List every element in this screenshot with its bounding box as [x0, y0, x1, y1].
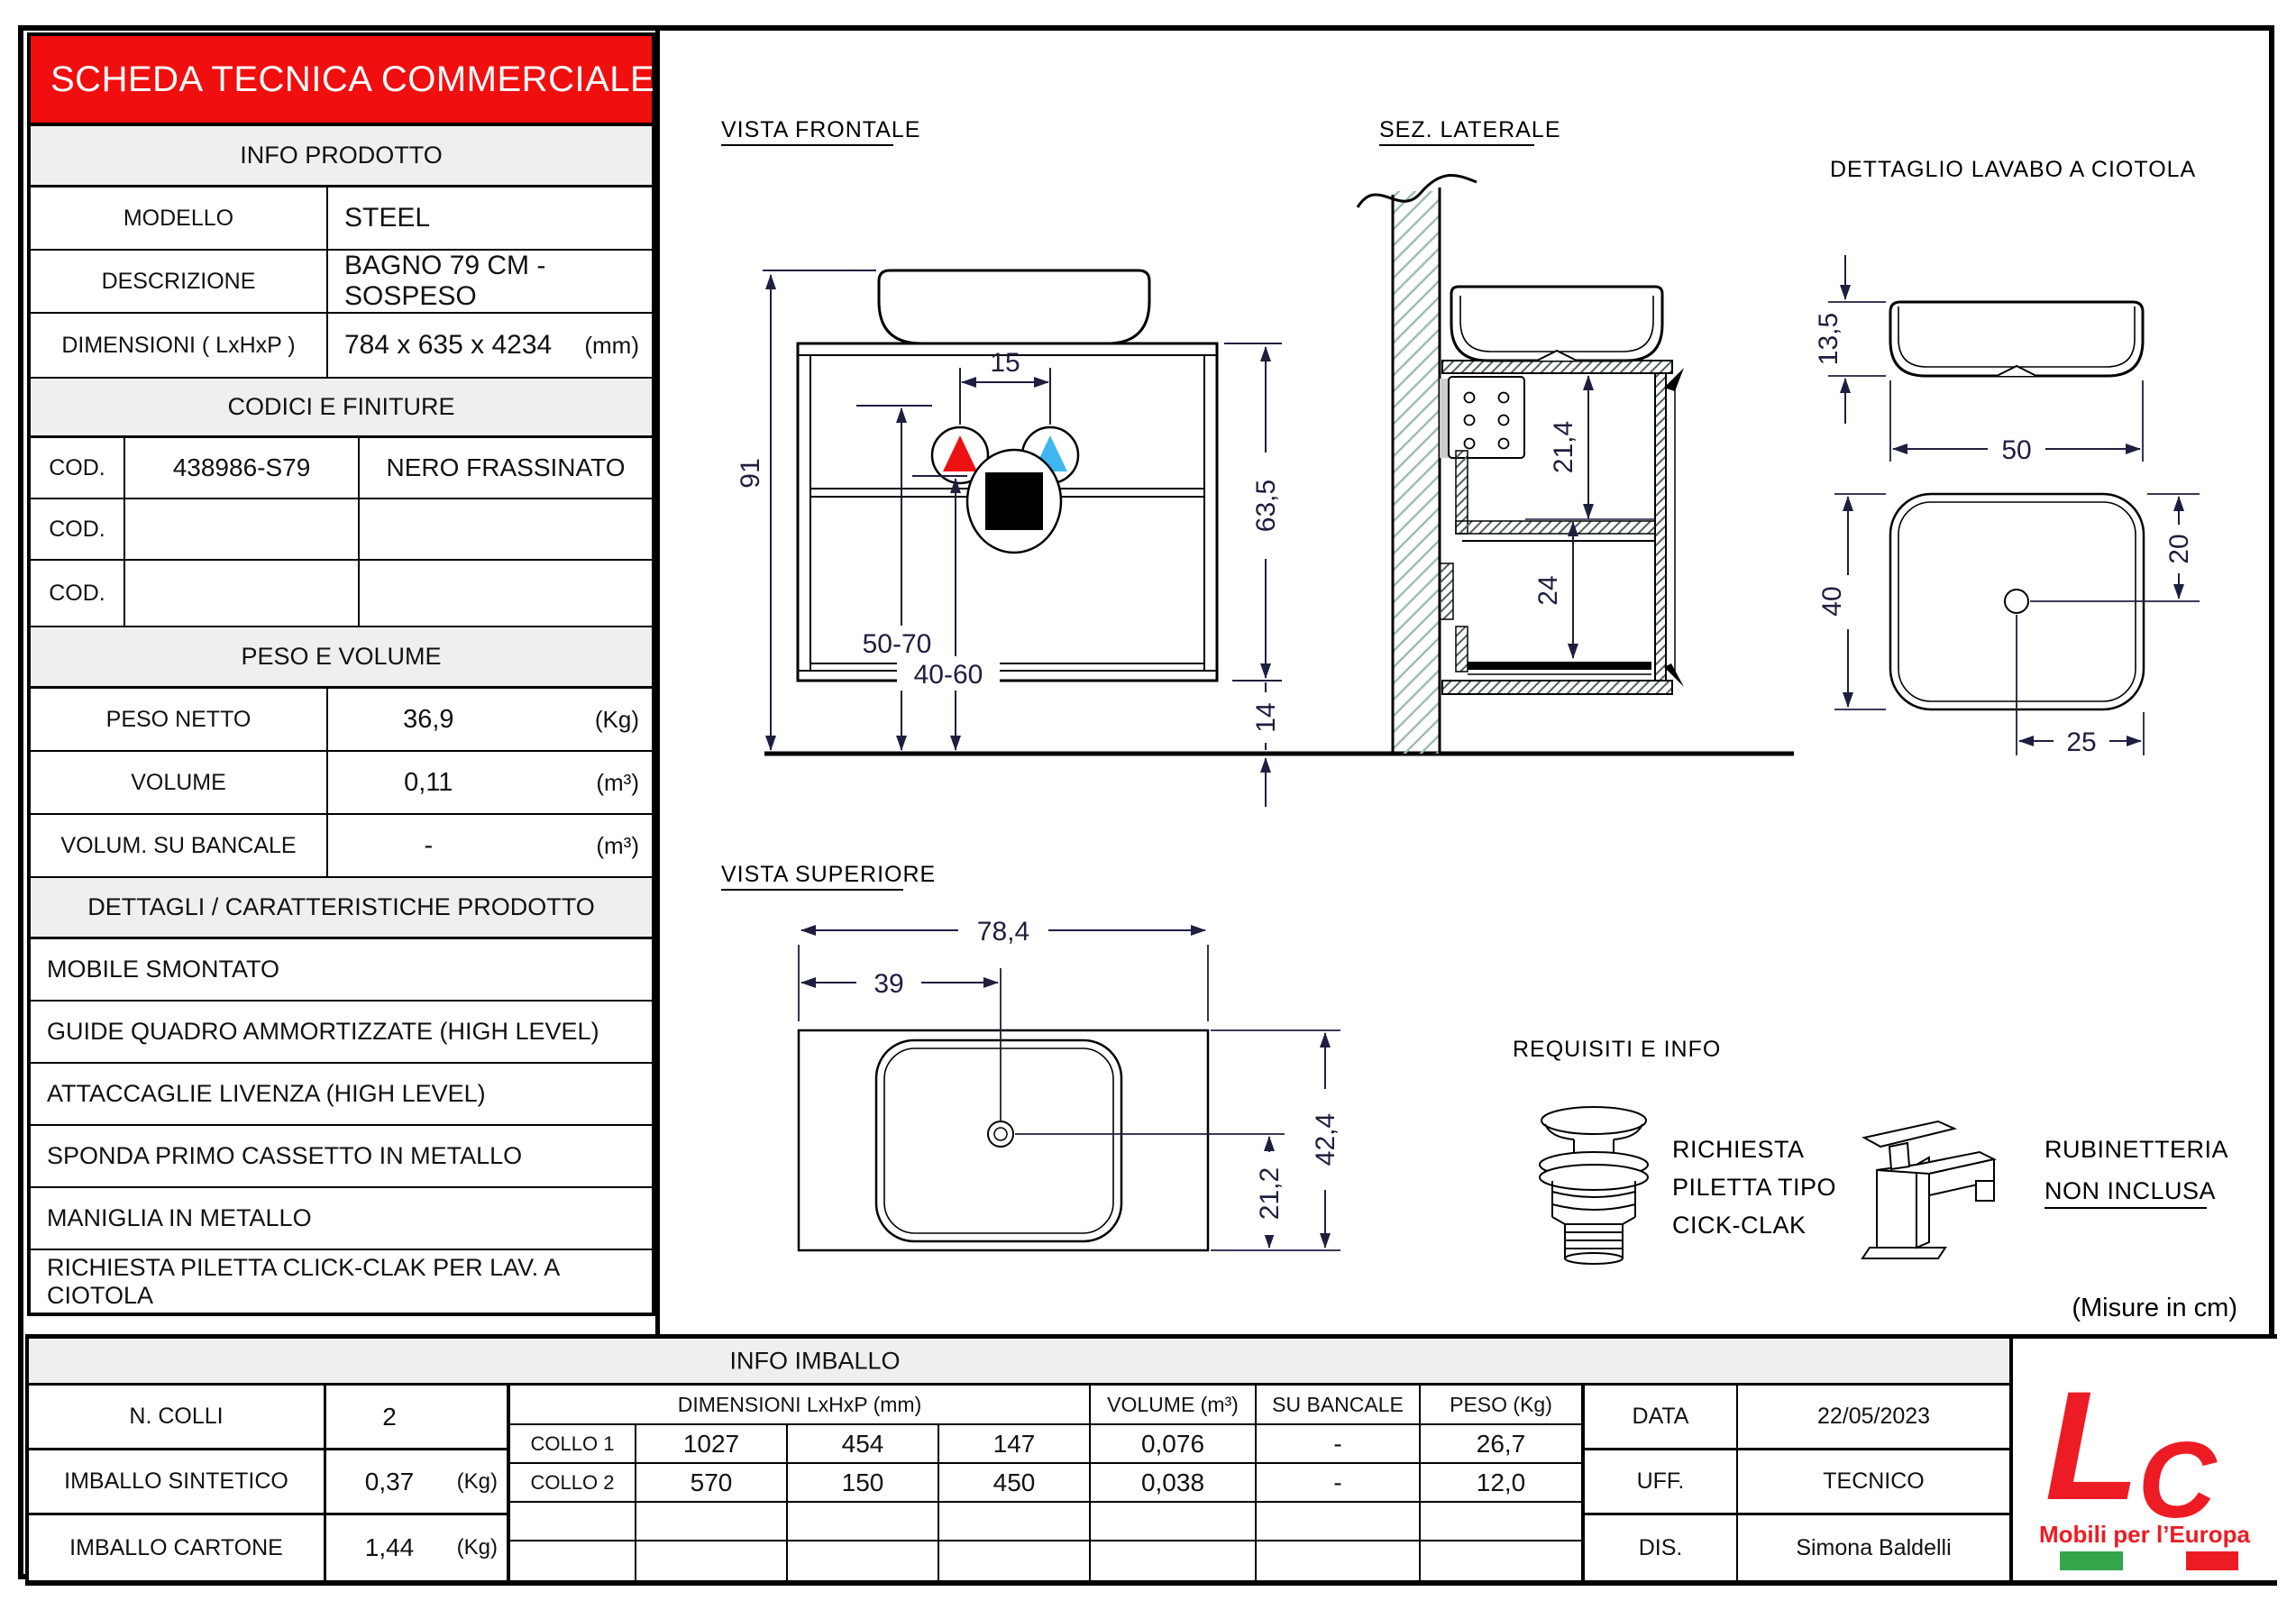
peso-volume-header: PESO E VOLUME	[31, 627, 652, 689]
sheet-title-banner: SCHEDA TECNICA COMMERCIALE	[31, 36, 652, 126]
peso-netto-unit: (Kg)	[595, 706, 639, 734]
collo2-peso: 12,0	[1421, 1464, 1581, 1503]
table-row: DESCRIZIONE BAGNO 79 CM - SOSPESO	[31, 251, 652, 314]
flag-green-bar	[2060, 1551, 2123, 1570]
cod-label: COD.	[31, 499, 125, 559]
collo1-vol: 0,076	[1091, 1425, 1257, 1464]
empty-cell	[1091, 1541, 1257, 1580]
modello-label: MODELLO	[31, 188, 328, 249]
empty-cell	[1421, 1503, 1581, 1541]
volume-label: VOLUME	[31, 752, 328, 813]
dettagli-item: GUIDE QUADRO AMMORTIZZATE (HIGH LEVEL)	[31, 1002, 652, 1064]
collo2-l: 570	[636, 1464, 788, 1503]
collo2-bancale: -	[1257, 1464, 1421, 1503]
volum-bancale-label: VOLUM. SU BANCALE	[31, 815, 328, 876]
volum-bancale-number: -	[328, 831, 529, 861]
data-value: 22/05/2023	[1738, 1386, 2009, 1450]
cod-finish: NERO FRASSINATO	[360, 438, 652, 498]
uff-label: UFF.	[1585, 1450, 1738, 1515]
info-imballo-table: INFO IMBALLO N. COLLI 2 IMBALLO SINTETIC…	[25, 1334, 2277, 1586]
collo2-p: 450	[939, 1464, 1091, 1503]
empty-cell	[1257, 1503, 1421, 1541]
imballo-left-table: N. COLLI 2 IMBALLO SINTETICO 0,37 (Kg) I…	[29, 1386, 507, 1580]
volume-number: 0,11	[328, 768, 529, 798]
drawing-info-table: DATA 22/05/2023 UFF. TECNICO DIS. Simona…	[1581, 1386, 2009, 1580]
dim-header: DIMENSIONI LxHxP (mm)	[510, 1386, 1091, 1425]
imballo-cartone-unit: (Kg)	[457, 1535, 498, 1560]
imballo-sintetico-number: 0,37	[326, 1468, 453, 1496]
empty-cell	[510, 1541, 636, 1580]
modello-value: STEEL	[328, 188, 652, 249]
n-colli-value: 2	[326, 1386, 507, 1450]
volume-header: VOLUME (m³)	[1091, 1386, 1257, 1425]
product-sheet-table: SCHEDA TECNICA COMMERCIALE INFO PRODOTTO…	[27, 32, 655, 1316]
collo1-bancale: -	[1257, 1425, 1421, 1464]
collo2-h: 150	[788, 1464, 939, 1503]
dimensioni-value: 784 x 635 x 4234 (mm)	[328, 314, 652, 377]
empty-cell	[939, 1541, 1091, 1580]
imballo-cartone-value: 1,44 (Kg)	[326, 1515, 507, 1580]
imballo-sintetico-unit: (Kg)	[457, 1469, 498, 1495]
empty-cell	[636, 1503, 788, 1541]
empty-cell	[788, 1541, 939, 1580]
table-row: COD.	[31, 499, 652, 561]
dimensioni-label: DIMENSIONI ( LxHxP )	[31, 314, 328, 377]
table-row: VOLUME 0,11 (m³)	[31, 752, 652, 815]
info-imballo-header: INFO IMBALLO	[29, 1339, 2009, 1386]
logo-letter-l: L	[2044, 1359, 2139, 1532]
imballo-cartone-label: IMBALLO CARTONE	[29, 1515, 326, 1580]
empty-cell	[1091, 1503, 1257, 1541]
collo1-peso: 26,7	[1421, 1425, 1581, 1464]
peso-header: PESO (Kg)	[1421, 1386, 1581, 1425]
imballo-sintetico-value: 0,37 (Kg)	[326, 1450, 507, 1515]
table-row: DIMENSIONI ( LxHxP ) 784 x 635 x 4234 (m…	[31, 314, 652, 379]
peso-netto-number: 36,9	[328, 705, 529, 735]
dettagli-item: MOBILE SMONTATO	[31, 939, 652, 1002]
volume-unit: (m³)	[596, 769, 639, 797]
data-label: DATA	[1585, 1386, 1738, 1450]
collo2-vol: 0,038	[1091, 1464, 1257, 1503]
peso-netto-label: PESO NETTO	[31, 689, 328, 750]
collo1-p: 147	[939, 1425, 1091, 1464]
flag-red-bar	[2186, 1551, 2238, 1570]
dimensioni-unit: (mm)	[584, 332, 639, 360]
n-colli-label: N. COLLI	[29, 1386, 326, 1450]
dettagli-header: DETTAGLI / CARATTERISTICHE PRODOTTO	[31, 878, 652, 939]
empty-cell	[1257, 1541, 1421, 1580]
column-divider	[655, 25, 660, 1334]
company-logo-box: L C Mobili per l’Europa	[2009, 1339, 2277, 1580]
info-prodotto-header: INFO PRODOTTO	[31, 126, 652, 188]
dimensioni-numbers: 784 x 635 x 4234	[344, 330, 552, 361]
dis-value: Simona Baldelli	[1738, 1515, 2009, 1580]
collo1-label: COLLO 1	[510, 1425, 636, 1464]
table-row: VOLUM. SU BANCALE - (m³)	[31, 815, 652, 878]
volum-bancale-unit: (m³)	[596, 832, 639, 860]
cod-value: 438986-S79	[125, 438, 360, 498]
volum-bancale-value: - (m³)	[328, 815, 652, 876]
table-row: COD.	[31, 561, 652, 627]
collo2-label: COLLO 2	[510, 1464, 636, 1503]
n-colli-number: 2	[326, 1403, 453, 1432]
lc-logo: L C Mobili per l’Europa	[2013, 1339, 2277, 1580]
uff-value: TECNICO	[1738, 1450, 2009, 1515]
empty-cell	[510, 1503, 636, 1541]
dettagli-item: MANIGLIA IN METALLO	[31, 1188, 652, 1250]
collo1-l: 1027	[636, 1425, 788, 1464]
colli-table: DIMENSIONI LxHxP (mm) VOLUME (m³) SU BAN…	[507, 1386, 1581, 1580]
imballo-cartone-number: 1,44	[326, 1533, 453, 1562]
cod-value	[125, 499, 360, 559]
empty-cell	[788, 1503, 939, 1541]
cod-value	[125, 561, 360, 626]
dis-label: DIS.	[1585, 1515, 1738, 1580]
sheet-title: SCHEDA TECNICA COMMERCIALE	[50, 59, 654, 100]
imballo-sintetico-label: IMBALLO SINTETICO	[29, 1450, 326, 1515]
empty-cell	[636, 1541, 788, 1580]
descrizione-value: BAGNO 79 CM - SOSPESO	[328, 251, 652, 312]
volume-value: 0,11 (m³)	[328, 752, 652, 813]
table-row: COD. 438986-S79 NERO FRASSINATO	[31, 438, 652, 499]
cod-label: COD.	[31, 561, 125, 626]
peso-netto-value: 36,9 (Kg)	[328, 689, 652, 750]
info-imballo-title: INFO IMBALLO	[729, 1347, 900, 1375]
table-row: MODELLO STEEL	[31, 188, 652, 251]
dettagli-item: ATTACCAGLIE LIVENZA (HIGH LEVEL)	[31, 1064, 652, 1126]
dettagli-item: SPONDA PRIMO CASSETTO IN METALLO	[31, 1126, 652, 1188]
empty-cell	[1421, 1541, 1581, 1580]
descrizione-label: DESCRIZIONE	[31, 251, 328, 312]
codici-header: CODICI E FINITURE	[31, 379, 652, 438]
cod-finish	[360, 561, 652, 626]
bancale-header: SU BANCALE	[1257, 1386, 1421, 1425]
collo1-h: 454	[788, 1425, 939, 1464]
cod-finish	[360, 499, 652, 559]
dettagli-item: RICHIESTA PILETTA CLICK-CLAK PER LAV. A …	[31, 1250, 652, 1313]
cod-label: COD.	[31, 438, 125, 498]
table-row: PESO NETTO 36,9 (Kg)	[31, 689, 652, 752]
empty-cell	[939, 1503, 1091, 1541]
logo-tagline: Mobili per l’Europa	[2039, 1521, 2251, 1548]
